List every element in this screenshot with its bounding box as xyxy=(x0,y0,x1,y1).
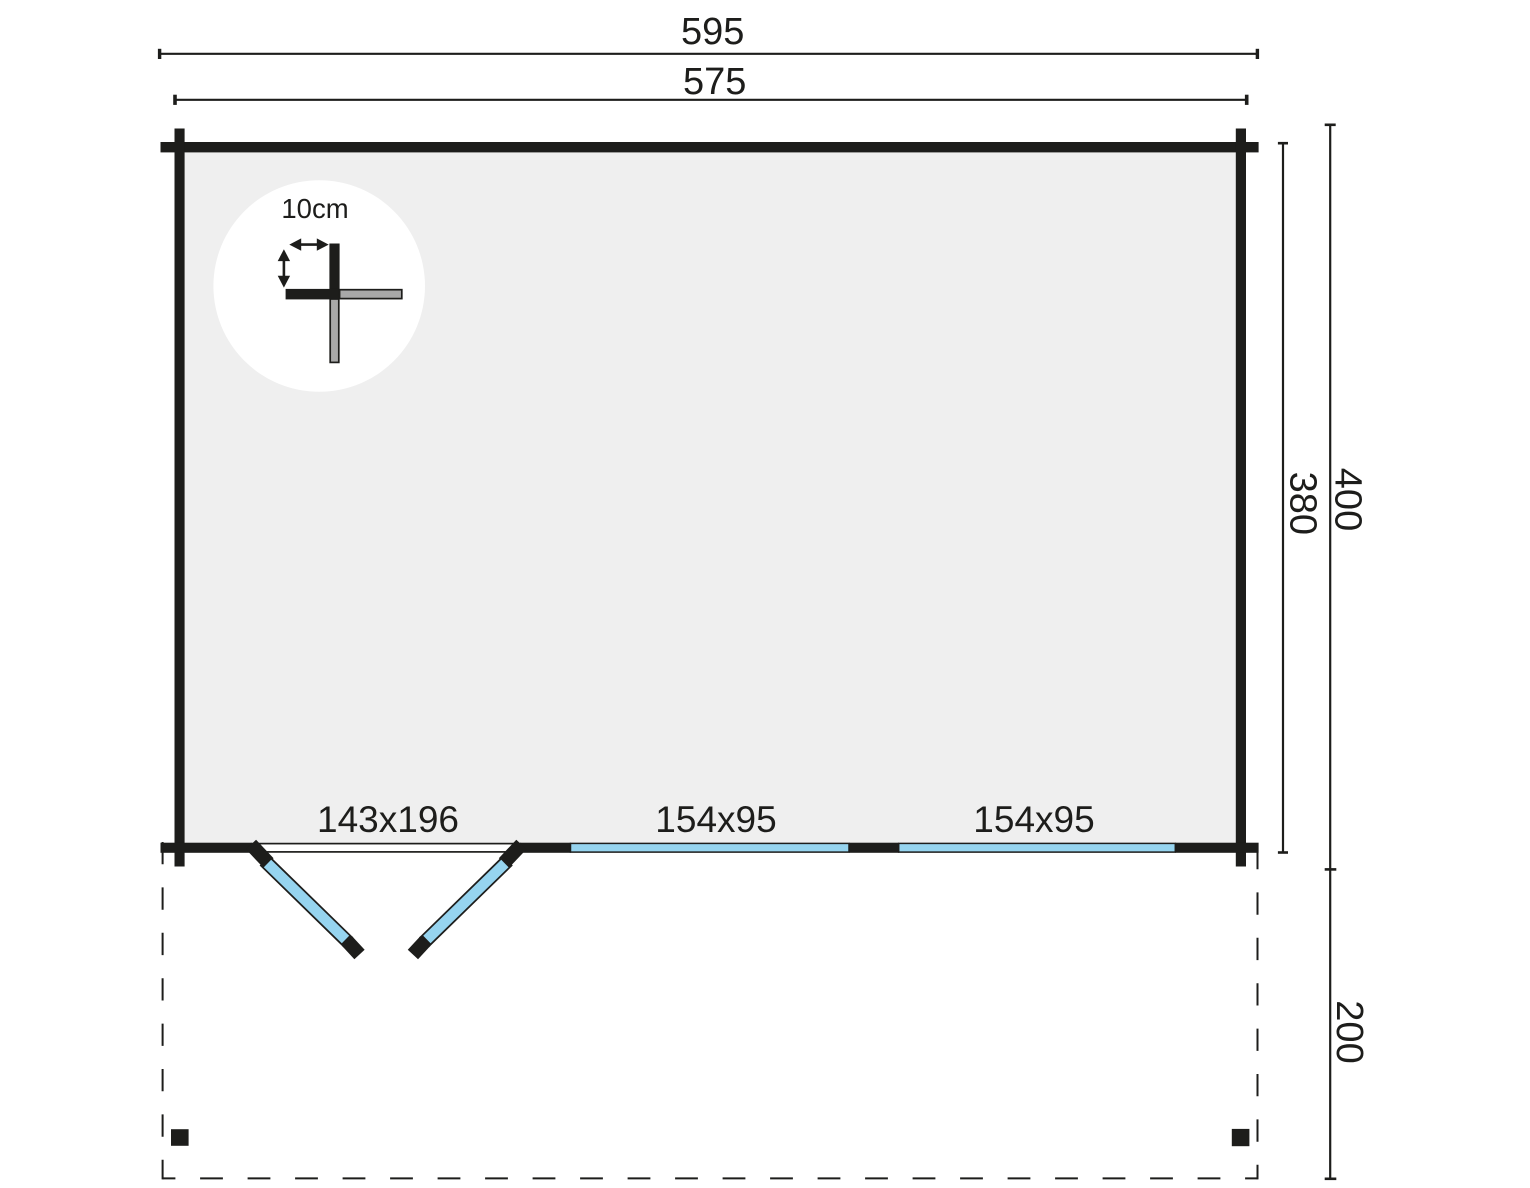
svg-text:400: 400 xyxy=(1327,468,1369,531)
svg-text:154x95: 154x95 xyxy=(655,799,776,840)
svg-text:575: 575 xyxy=(683,61,746,103)
svg-text:595: 595 xyxy=(681,11,744,53)
svg-text:380: 380 xyxy=(1282,472,1324,535)
svg-text:154x95: 154x95 xyxy=(973,799,1094,840)
svg-text:10cm: 10cm xyxy=(281,193,348,224)
svg-text:200: 200 xyxy=(1328,1000,1370,1063)
svg-text:143x196: 143x196 xyxy=(317,799,459,840)
